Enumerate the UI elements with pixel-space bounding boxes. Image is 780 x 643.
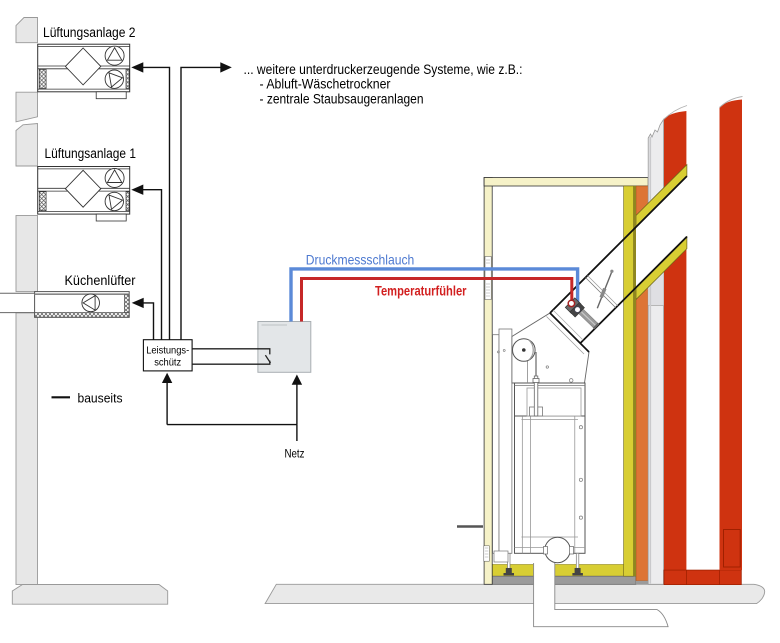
svg-text:- Abluft-Wäschetrockner: - Abluft-Wäschetrockner <box>260 77 391 93</box>
svg-text:... weitere unterdruckerzeugen: ... weitere unterdruckerzeugende Systeme… <box>244 62 523 78</box>
svg-text:Druckmessschlauch: Druckmessschlauch <box>306 251 415 267</box>
svg-text:Leistungs-: Leistungs- <box>146 346 189 357</box>
svg-text:schütz: schütz <box>154 358 181 369</box>
svg-text:Lüftungsanlage 2: Lüftungsanlage 2 <box>43 25 136 41</box>
svg-text:Küchenlüfter: Küchenlüfter <box>65 273 136 289</box>
svg-text:Netz: Netz <box>285 449 305 461</box>
svg-text:bauseits: bauseits <box>78 392 123 406</box>
svg-text:Lüftungsanlage 1: Lüftungsanlage 1 <box>45 146 137 162</box>
svg-text:Temperaturfühler: Temperaturfühler <box>375 282 467 298</box>
svg-text:- zentrale Staubsaugeranlagen: - zentrale Staubsaugeranlagen <box>260 91 424 107</box>
